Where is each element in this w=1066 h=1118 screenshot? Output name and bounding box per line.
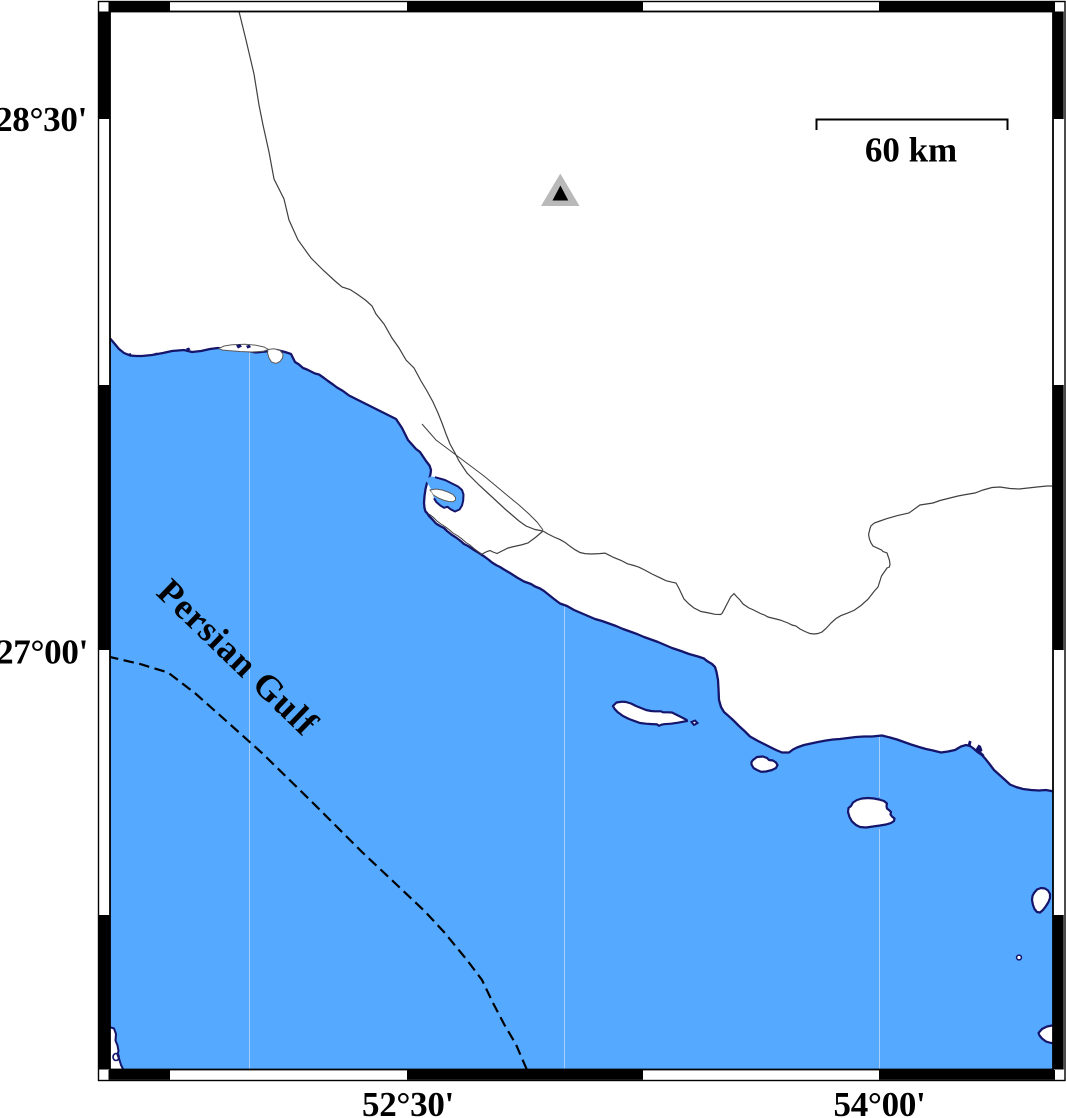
svg-text:60 km: 60 km	[865, 131, 957, 170]
svg-text:28°30': 28°30'	[0, 100, 87, 139]
svg-text:54°00': 54°00'	[834, 1085, 926, 1118]
svg-text:52°30': 52°30'	[362, 1085, 454, 1118]
svg-text:27°00': 27°00'	[0, 633, 88, 672]
